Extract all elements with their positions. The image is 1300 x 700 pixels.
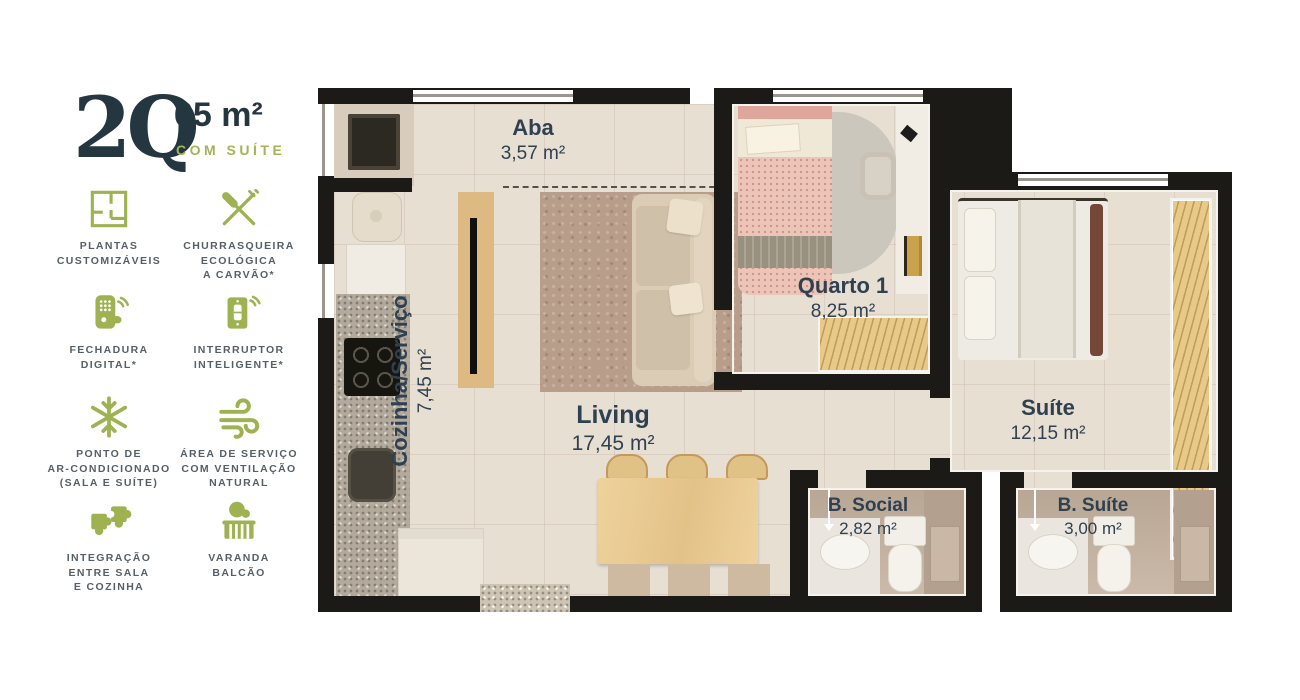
dining-chair-seat [608, 564, 650, 596]
bbq-grill [348, 114, 400, 170]
window-quarto1 [773, 90, 923, 102]
wall-quarto1-right [930, 88, 950, 398]
room-label-bsocial: B. Social 2,82 m² [793, 494, 943, 539]
quarto1-pillow [745, 123, 801, 155]
snowflake-icon [84, 392, 134, 442]
feature-interruptor: INTERRUPTOR INTELIGENTE* [174, 288, 304, 392]
wall-quarto1-bottom [714, 372, 948, 390]
wall-right [1216, 172, 1232, 612]
bath-social-sink [820, 534, 870, 570]
feature-label: CHURRASQUEIRA ECOLÓGICA A CARVÃO* [183, 239, 295, 283]
feature-plantas: PLANTAS CUSTOMIZÁVEIS [44, 184, 174, 288]
feature-integracao: INTEGRAÇÃO ENTRE SALA E COZINHA [44, 496, 174, 600]
window-aba [413, 90, 573, 102]
quarto1-blanket [738, 236, 832, 268]
unit-tagline: COM SUÍTE [176, 142, 285, 158]
outside-area [1012, 88, 1232, 172]
feature-fechadura: FECHADURA DIGITAL* [44, 288, 174, 392]
unit-area-heading: 65 m² [174, 96, 263, 135]
fridge [398, 528, 484, 598]
feature-churrasqueira: CHURRASQUEIRA ECOLÓGICA A CARVÃO* [174, 184, 304, 288]
floorplan-icon [84, 184, 134, 234]
tv-screen [470, 218, 477, 374]
dining-chair-seat [728, 564, 770, 596]
bath-suite-shower-tray [1180, 526, 1210, 582]
window-left-2 [318, 264, 334, 318]
feature-legend: PLANTAS CUSTOMIZÁVEIS CHURRASQUEIRA ECOL… [44, 184, 304, 600]
wall-suite-left-stub [930, 458, 950, 470]
smart-switch-icon [214, 288, 264, 338]
suite-pillow [964, 208, 996, 272]
suite-pillow [964, 276, 996, 340]
sofa-pillow [668, 282, 703, 316]
cutlery-icon [214, 184, 264, 234]
sofa-pillow [666, 198, 704, 236]
quarto1-books [904, 236, 922, 276]
feature-label: VARANDA BALCÃO [208, 551, 270, 580]
window-suite [1018, 174, 1168, 186]
feature-label: PONTO DE AR-CONDICIONADO (SALA E SUÍTE) [47, 447, 170, 491]
room-label-suite: Suíte 12,15 m² [968, 394, 1128, 445]
room-label-aba: Aba 3,57 m² [463, 114, 603, 165]
floorplan-page: 2Q 65 m² COM SUÍTE PLANTAS CUSTOMIZÁVEIS [0, 0, 1300, 700]
bath-social-toilet [888, 544, 922, 592]
puzzle-icon [84, 496, 134, 546]
wall-quarto1-left [714, 88, 732, 310]
feature-label: INTEGRAÇÃO ENTRE SALA E COZINHA [67, 551, 152, 595]
smart-lock-icon [84, 288, 134, 338]
dining-chair [666, 454, 708, 480]
dining-table [598, 478, 758, 564]
window-left-1 [318, 104, 334, 176]
feature-label: PLANTAS CUSTOMIZÁVEIS [57, 239, 161, 268]
feature-ar-condicionado: PONTO DE AR-CONDICIONADO (SALA E SUÍTE) [44, 392, 174, 496]
quarto1-bed-headboard [738, 106, 832, 119]
aba-opening [503, 186, 725, 188]
room-label-living: Living 17,45 m² [533, 400, 693, 458]
feature-label: FECHADURA DIGITAL* [69, 343, 148, 372]
bath-suite-sink [1028, 534, 1078, 570]
feature-ventilacao: ÁREA DE SERVIÇO COM VENTILAÇÃO NATURAL [174, 392, 304, 496]
dining-chair [606, 454, 648, 480]
room-label-quarto1: Quarto 1 8,25 m² [763, 272, 923, 323]
floor-plan: Aba 3,57 m² Cozinha/Serviço 7,45 m² Livi… [318, 88, 1232, 612]
balcony-threshold [480, 584, 570, 612]
suite-duvet-fold [1018, 200, 1076, 358]
balcony-icon [214, 496, 264, 546]
wall-bottom [318, 596, 1232, 612]
bath-suite-toilet [1097, 544, 1131, 592]
feature-varanda: VARANDA BALCÃO [174, 496, 304, 600]
room-label-bsuite: B. Suíte 3,00 m² [1018, 494, 1168, 539]
wall-shaft-right [1000, 470, 1016, 596]
entry-door-opening [690, 88, 714, 104]
dining-chair-seat [668, 564, 710, 596]
quarto1-chair [860, 152, 896, 200]
wall-bath-top-c [1072, 470, 1232, 488]
dining-chair [726, 454, 768, 480]
laundry-tank-drain [370, 210, 382, 222]
quarto1-wardrobe [818, 316, 930, 372]
feature-label: ÁREA DE SERVIÇO COM VENTILAÇÃO NATURAL [180, 447, 298, 491]
wall-shaft-left [966, 470, 982, 596]
ventilation-shaft [982, 470, 1000, 612]
wall-topright-mass [948, 88, 1012, 190]
room-label-cozinha: Cozinha/Serviço 7,45 m² [386, 251, 450, 511]
wall-bbq-stub [334, 178, 412, 192]
feature-label: INTERRUPTOR INTELIGENTE* [193, 343, 284, 372]
wind-icon [214, 392, 264, 442]
suite-throw [1090, 204, 1103, 356]
